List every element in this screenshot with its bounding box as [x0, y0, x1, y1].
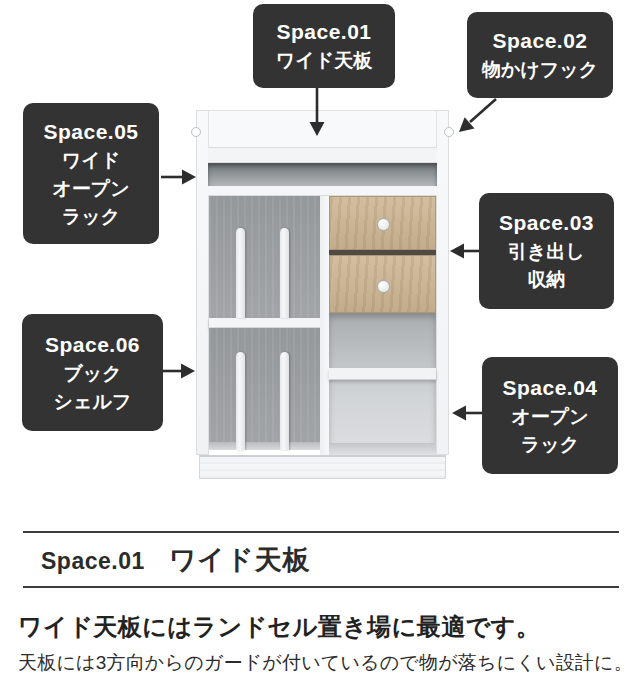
open-rack-bay — [329, 313, 436, 455]
section-number: Space.01 — [41, 548, 145, 575]
cabinet-right-side-panel — [436, 110, 449, 455]
hanger-hook-right — [444, 127, 454, 137]
section-body-text: 天板には3方向からのガードが付いているので物が落ちにくい設計に。 — [18, 650, 633, 676]
annotated-product-diagram: Space.01 ワイド天板 Space.02 物かけフック Space.03 … — [0, 0, 640, 691]
section-divider-top — [23, 531, 619, 533]
callout-space-03-drawers: Space.03 引き出し 収納 — [479, 193, 614, 309]
callout-space-05-wide-open-rack: Space.05 ワイド オープン ラック — [23, 103, 159, 244]
callout-text: オープン — [52, 175, 129, 203]
callout-space-01-wide-top: Space.01 ワイド天板 — [253, 4, 395, 88]
section-title: ワイド天板 — [169, 542, 311, 578]
section-lead-text: ワイド天板にはランドセル置き場に最適です。 — [18, 611, 540, 643]
book-shelf-divider — [280, 352, 289, 450]
callout-text: ラック — [521, 431, 579, 459]
callout-number: Space.02 — [492, 26, 587, 56]
section-heading: Space.01 ワイド天板 — [41, 542, 311, 578]
center-divider-panel — [320, 196, 329, 455]
callout-text: 収納 — [528, 266, 566, 294]
book-shelf-lower-bay — [209, 328, 320, 450]
callout-space-06-book-shelf: Space.06 ブック シェルフ — [22, 314, 163, 431]
callout-text: ブック — [63, 360, 121, 388]
top-board-front-edge — [208, 148, 437, 163]
callout-number: Space.04 — [502, 373, 597, 403]
callout-text: 物かけフック — [482, 56, 598, 84]
section-divider-bottom — [23, 586, 619, 588]
wide-open-rack-slot — [208, 163, 437, 186]
upper-drawer — [329, 196, 436, 250]
callout-text: ワイド天板 — [276, 47, 372, 75]
drawer-knob — [377, 218, 390, 231]
book-shelf-divider — [280, 228, 289, 318]
callout-number: Space.05 — [43, 117, 138, 147]
callout-space-02-hook: Space.02 物かけフック — [467, 12, 613, 98]
base-board — [199, 455, 446, 479]
book-shelf-divider — [236, 228, 245, 318]
callout-text: 引き出し — [508, 238, 585, 266]
drawer-knob — [377, 280, 390, 293]
book-shelf-floor — [209, 442, 320, 450]
open-rack-floor — [329, 443, 436, 455]
callout-number: Space.03 — [499, 208, 594, 238]
callout-number: Space.06 — [45, 330, 140, 360]
lower-drawer — [329, 255, 436, 313]
cabinet-illustration — [196, 110, 449, 479]
book-shelf-upper-bay — [209, 196, 320, 318]
hanger-hook-left — [191, 127, 201, 137]
callout-text: ラック — [62, 203, 120, 231]
callout-text: オープン — [511, 403, 588, 431]
callout-text: ワイド — [62, 147, 120, 175]
callout-space-04-open-rack: Space.04 オープン ラック — [482, 357, 618, 474]
callout-number: Space.01 — [276, 17, 371, 47]
open-rack-middle-shelf — [329, 368, 436, 380]
open-rack-shelf-board — [208, 186, 437, 196]
book-shelf-divider — [236, 352, 245, 450]
callout-text: シェルフ — [54, 388, 132, 416]
top-board-guard — [208, 110, 437, 148]
drawer-and-rack-column — [329, 196, 436, 455]
book-shelf-middle-board — [209, 318, 320, 328]
